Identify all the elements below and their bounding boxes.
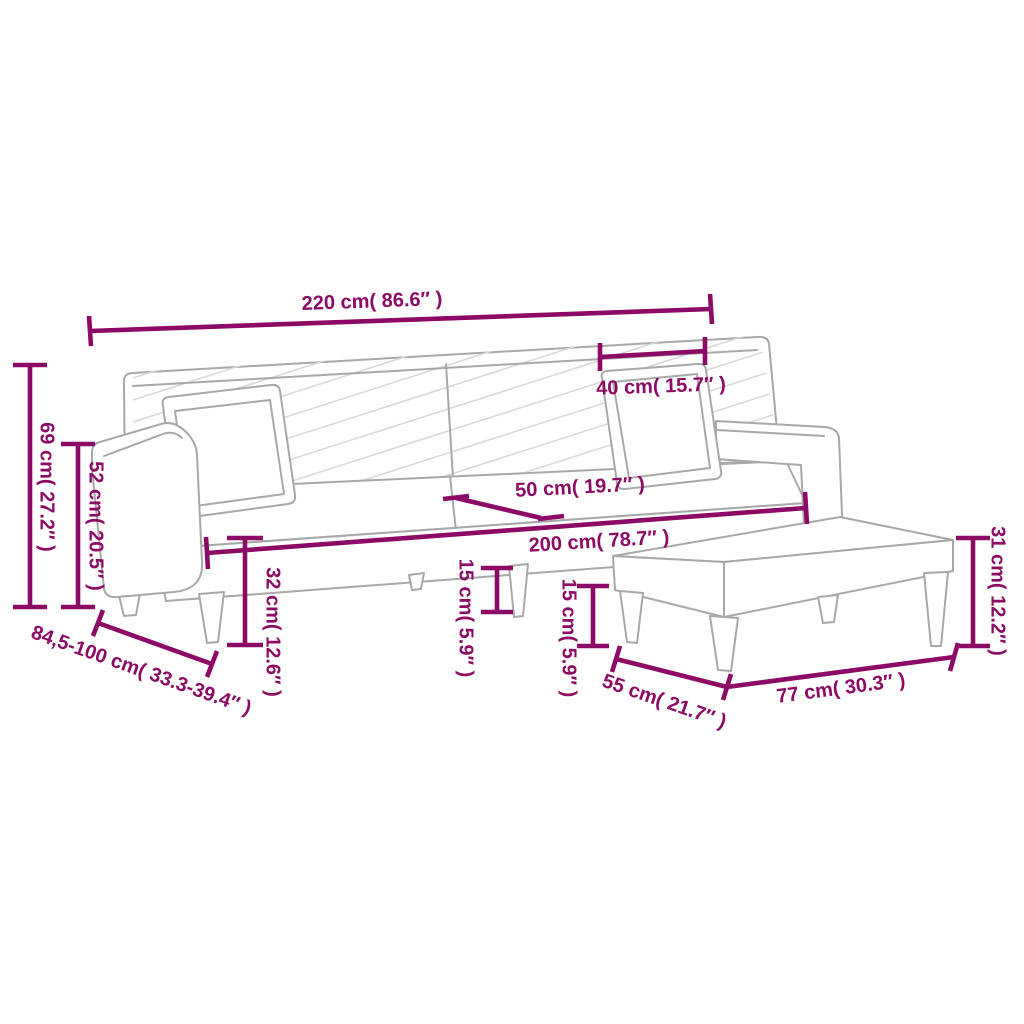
- left-armrest: [92, 423, 202, 597]
- dim-label-footstool-height: 31 cm( 12.2″ ): [986, 526, 1009, 656]
- dim-label-pillow-width: 40 cm( 15.7″ ): [596, 373, 726, 401]
- dim-label-sofa-width: 220 cm( 86.6″ ): [301, 288, 442, 316]
- dimension-diagram: 220 cm( 86.6″ ) 40 cm( 15.7″ ) 69 cm( 27…: [0, 0, 1024, 1024]
- footstool-leg: [818, 595, 838, 623]
- dim-label-total-height: 69 cm( 27.2″ ): [35, 422, 58, 552]
- footstool-leg: [620, 591, 643, 643]
- footstool-leg: [710, 616, 738, 671]
- product-line-drawing: [0, 0, 1024, 1024]
- sofa-sketch: [92, 170, 953, 671]
- footstool-leg: [924, 572, 948, 646]
- sofa-leg: [409, 573, 424, 590]
- dim-label-footstool-leg-clearance: 15 cm( 5.9″ ): [557, 579, 580, 698]
- dim-label-armrest-height: 52 cm( 20.5″ ): [84, 461, 107, 591]
- dim-line-footstool-leg-clearance: [577, 586, 609, 646]
- sofa-leg: [509, 564, 528, 617]
- dim-label-seat-height: 32 cm( 12.6″ ): [261, 567, 284, 697]
- sofa-leg: [199, 592, 224, 643]
- dim-label-sofa-leg-clearance: 15 cm( 5.9″ ): [454, 559, 477, 678]
